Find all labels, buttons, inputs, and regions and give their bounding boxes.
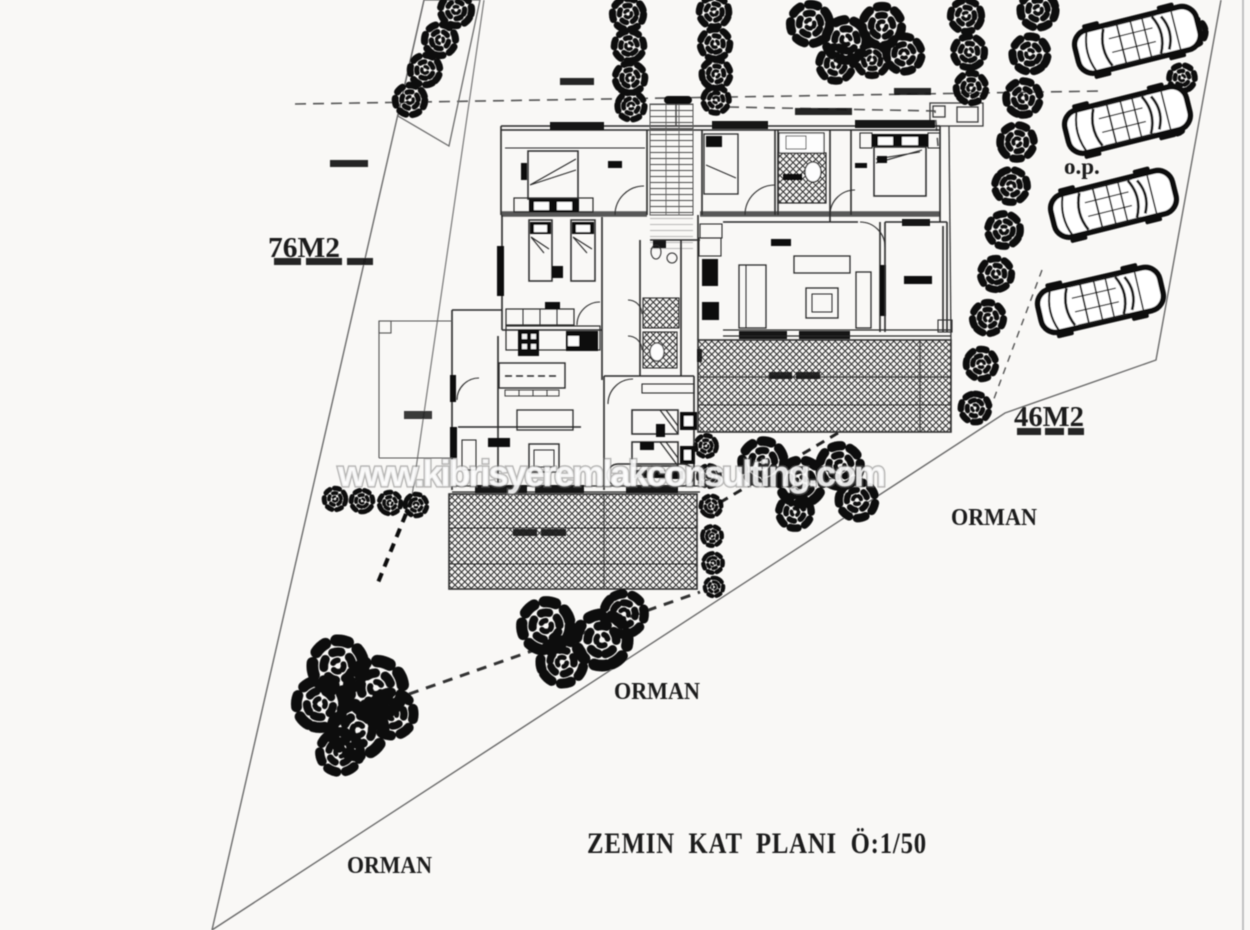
svg-text:ORMAN: ORMAN: [951, 505, 1038, 531]
svg-text:o.p.: o.p.: [1064, 154, 1100, 179]
svg-text:www.kibrisyeremlakconsulting.c: www.kibrisyeremlakconsulting.com: [337, 453, 886, 494]
svg-text:ORMAN: ORMAN: [347, 853, 433, 879]
svg-text:ORMAN: ORMAN: [614, 679, 701, 705]
svg-text:46M2: 46M2: [1014, 402, 1084, 433]
svg-text:76M2: 76M2: [268, 233, 340, 264]
svg-text:ZEMIN KAT PLANI Ö:1/50: ZEMIN KAT PLANI Ö:1/50: [587, 827, 927, 860]
